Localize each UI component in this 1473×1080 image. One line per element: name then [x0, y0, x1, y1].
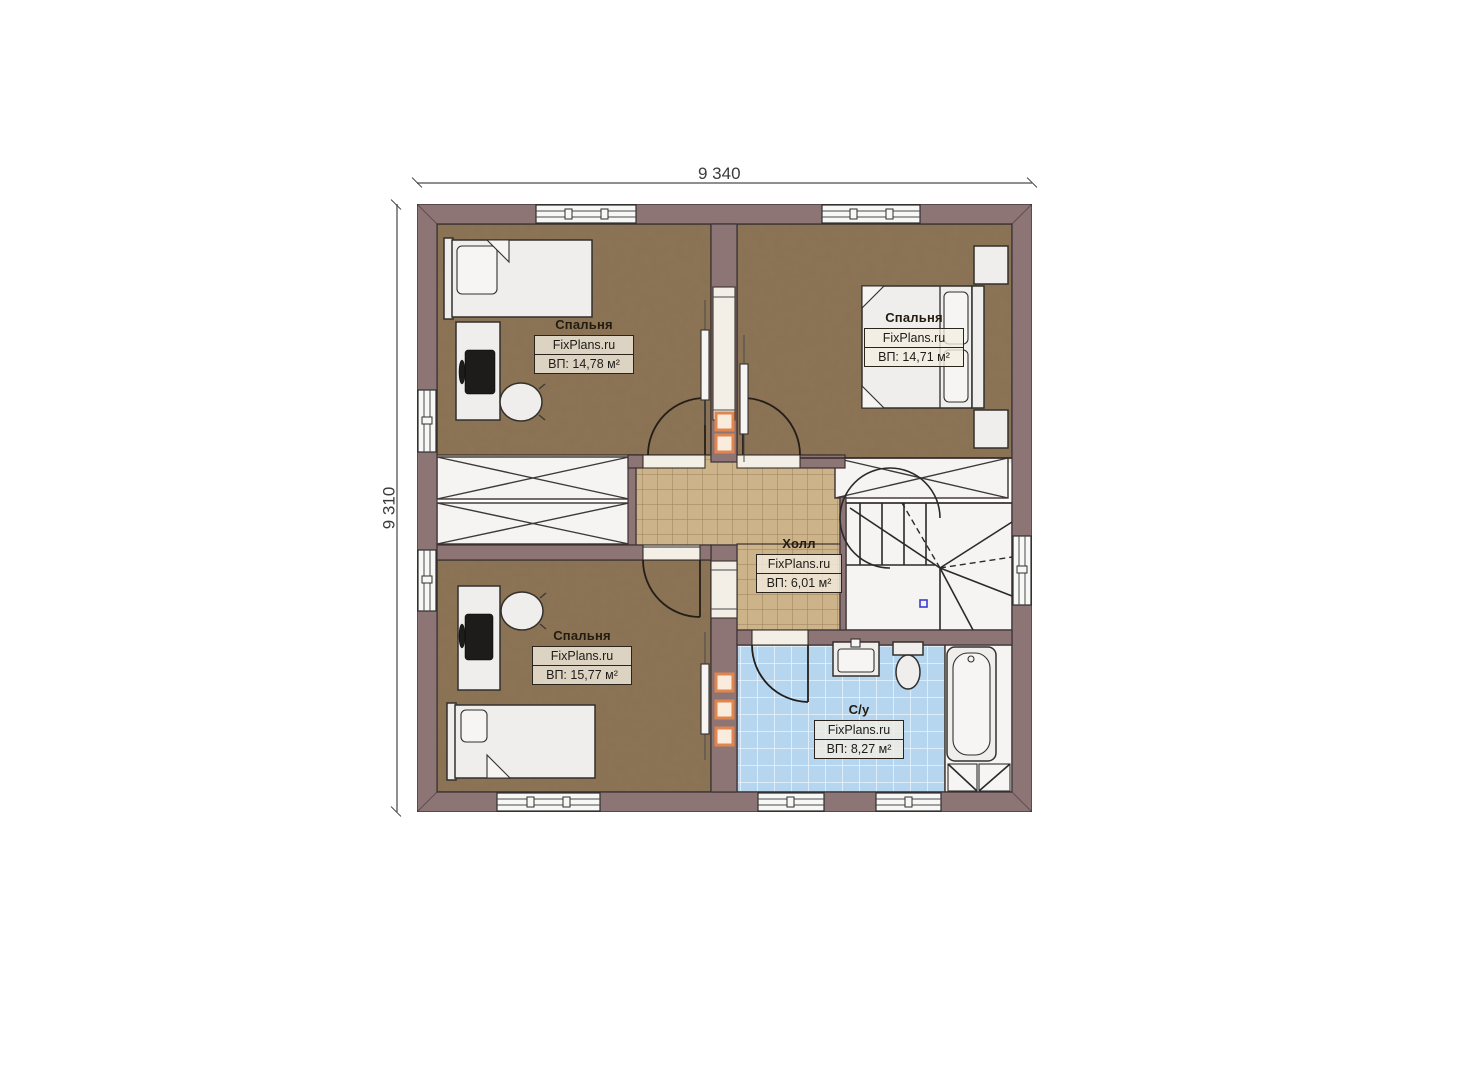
- room-area: ВП: 14,78 м²: [535, 354, 633, 373]
- desk: [458, 586, 500, 690]
- room-name: Спальня: [532, 628, 632, 643]
- room-name: Спальня: [864, 310, 964, 325]
- room-info-box: FixPlans.ru ВП: 14,71 м²: [864, 328, 964, 367]
- room-info-box: FixPlans.ru ВП: 6,01 м²: [756, 554, 842, 593]
- floor-plan: [417, 204, 1032, 812]
- room-info-box: FixPlans.ru ВП: 14,78 м²: [534, 335, 634, 374]
- wardrobe: [437, 457, 629, 499]
- floor-plan-canvas: 9 340 9 310: [0, 0, 1473, 1080]
- room-area: ВП: 15,77 м²: [533, 665, 631, 684]
- sink: [833, 639, 879, 676]
- dimension-left-line: [396, 204, 398, 812]
- toilet: [893, 642, 923, 689]
- room-area: ВП: 8,27 м²: [815, 739, 903, 758]
- room-label-hall: Холл FixPlans.ru ВП: 6,01 м²: [756, 536, 842, 593]
- room-info-box: FixPlans.ru ВП: 8,27 м²: [814, 720, 904, 759]
- window: [876, 793, 941, 811]
- room-area: ВП: 14,71 м²: [865, 347, 963, 366]
- room-name: С/у: [814, 702, 904, 717]
- room-name: Холл: [756, 536, 842, 551]
- wardrobe: [437, 503, 629, 544]
- room-label-bedroom-tr: Спальня FixPlans.ru ВП: 14,71 м²: [864, 310, 964, 367]
- watermark: FixPlans.ru: [757, 555, 841, 573]
- watermark: FixPlans.ru: [533, 647, 631, 665]
- window: [758, 793, 824, 811]
- watermark: FixPlans.ru: [535, 336, 633, 354]
- floor-plan-drawing: [417, 204, 1032, 812]
- window: [418, 390, 436, 452]
- room-label-bedroom-tl: Спальня FixPlans.ru ВП: 14,78 м²: [534, 317, 634, 374]
- room-info-box: FixPlans.ru ВП: 15,77 м²: [532, 646, 632, 685]
- desk: [456, 322, 500, 420]
- room-label-bathroom: С/у FixPlans.ru ВП: 8,27 м²: [814, 702, 904, 759]
- room-area: ВП: 6,01 м²: [757, 573, 841, 592]
- window: [536, 205, 636, 223]
- window: [497, 793, 600, 811]
- watermark: FixPlans.ru: [865, 329, 963, 347]
- window: [822, 205, 920, 223]
- room-name: Спальня: [534, 317, 634, 332]
- room-label-bedroom-bl: Спальня FixPlans.ru ВП: 15,77 м²: [532, 628, 632, 685]
- window: [1013, 536, 1031, 605]
- bed: [444, 238, 592, 319]
- dimension-top-label: 9 340: [692, 164, 747, 184]
- dimension-top-line: [417, 182, 1032, 184]
- watermark: FixPlans.ru: [815, 721, 903, 739]
- window: [418, 550, 436, 611]
- bed: [447, 703, 595, 780]
